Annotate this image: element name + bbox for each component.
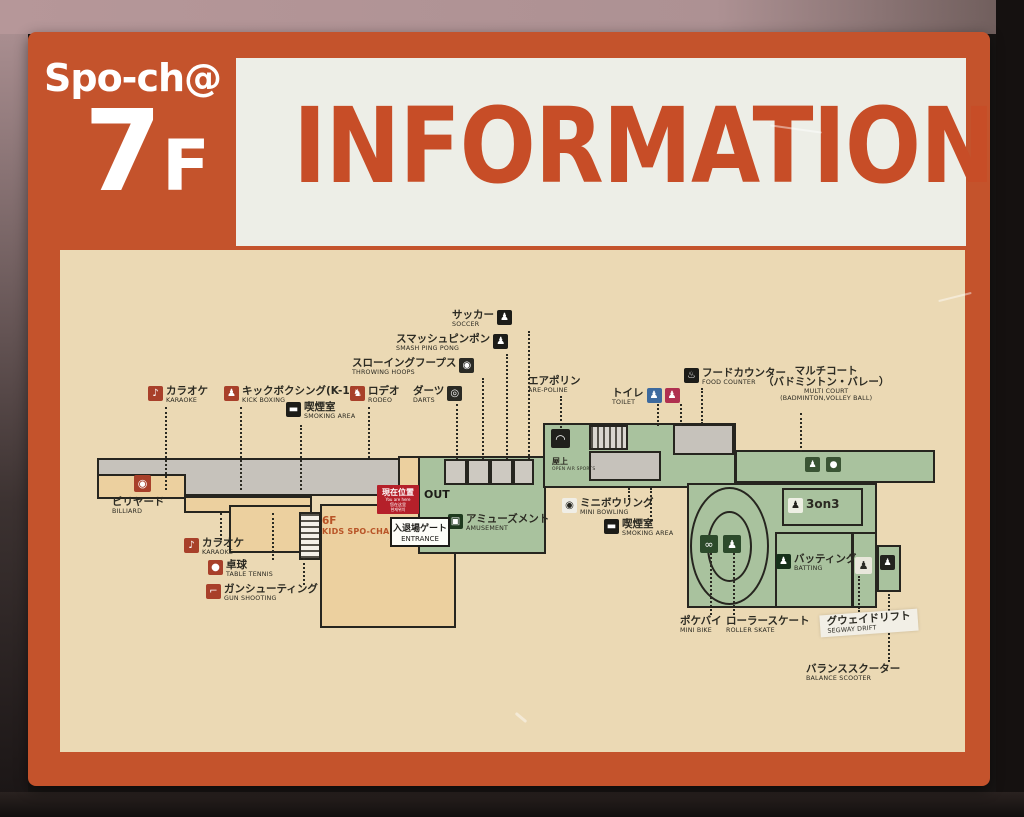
facility-label-text: 3on3 <box>806 498 840 510</box>
facility-label-balance-scooter: バランススクーターBALANCE SCOOTER <box>806 664 900 682</box>
label-japanese: ミニボウリング <box>580 498 654 509</box>
label-japanese: スマッシュピンポン <box>396 334 490 345</box>
facility-label-karaoke-upper: ♪カラオケKARAOKE <box>148 386 208 404</box>
label-japanese: アミューズメント <box>466 514 549 525</box>
badminton-icon: ♟ <box>805 457 820 472</box>
facility-label-text: 屋上OPEN AIR SPORTS <box>552 458 595 472</box>
label-english: (BADMINTON,VOLLEY BALL) <box>780 396 872 402</box>
label-english: GUN SHOOTING <box>224 596 318 602</box>
label-japanese: ローラースケート <box>726 616 809 627</box>
you-are-here-ko: 현재위치 <box>378 508 418 513</box>
label-english: MINI BOWLING <box>580 510 654 516</box>
label-english: MULTI COURT <box>804 389 848 395</box>
label-english: KARAOKE <box>202 550 244 556</box>
label-japanese: （バドミントン・バレー） <box>763 377 889 388</box>
three-on-three-icon: ♟ <box>788 498 803 513</box>
facility-label-smoking-left: ▬喫煙室SMOKING AREA <box>286 402 355 420</box>
label-japanese: キックボクシング(K-1) <box>242 386 355 397</box>
facility-label-text: トイレTOILET <box>612 388 644 406</box>
zone-booth-2 <box>467 459 490 485</box>
label-english: THROWING HOOPS <box>352 370 456 376</box>
soccer-icon: ♟ <box>497 310 512 325</box>
facility-label-text: アミューズメントAMUSEMENT <box>466 514 549 532</box>
leader-line <box>456 404 458 459</box>
facility-label-text: ガンシューティングGUN SHOOTING <box>224 584 318 602</box>
you-are-here-badge: 現在位置 You are here 您在这里 현재위치 <box>377 485 419 514</box>
label-japanese: 6F <box>322 516 389 527</box>
facility-label-text: ロデオRODEO <box>368 386 400 404</box>
facility-label-text: ミニボウリングMINI BOWLING <box>580 498 654 516</box>
rodeo-icon: ♞ <box>350 386 365 401</box>
karaoke-upper-icon: ♪ <box>148 386 163 401</box>
facility-label-roller-skate: ローラースケートROLLER SKATE <box>726 616 809 634</box>
facility-label-text: カラオケKARAOKE <box>202 538 244 556</box>
zone-stairs-right <box>589 425 628 450</box>
leader-line <box>506 354 508 459</box>
label-english: BATTING <box>794 566 856 572</box>
facility-label-text: 6FKIDS SPO-CHA <box>322 516 389 536</box>
toilet-icon-1: ♟ <box>647 388 662 403</box>
zone-booth-4 <box>513 459 534 485</box>
label-japanese: 卓球 <box>226 560 273 571</box>
label-english: RODEO <box>368 398 400 404</box>
facility-label-text: マルチコート（バドミントン・バレー）MULTI COURT(BADMINTON,… <box>763 366 889 403</box>
facility-label-smoking-right: ▬喫煙室SMOKING AREA <box>604 519 673 537</box>
balance-icon: ♟ <box>880 555 895 570</box>
leader-line <box>272 513 274 560</box>
label-english: DARTS <box>413 398 444 404</box>
label-japanese: カラオケ <box>166 386 208 397</box>
entrance-gate-label: 入退場ゲート ENTRANCE <box>390 517 450 547</box>
label-japanese: 3on3 <box>806 498 840 510</box>
out-exit-label: OUT <box>424 488 450 501</box>
label-japanese: バッティング <box>794 554 856 565</box>
mini-bowling-icon: ◉ <box>562 498 577 513</box>
label-japanese: 屋上 <box>552 458 595 466</box>
roller-skate-icon: ♟ <box>723 535 741 553</box>
label-japanese: トイレ <box>612 388 644 399</box>
facility-label-rooftop: 屋上OPEN AIR SPORTS <box>552 458 595 472</box>
mini-bike-icon: ∞ <box>700 535 718 553</box>
leader-line <box>680 404 682 426</box>
amusement-icon: ▣ <box>448 514 463 529</box>
smoking-left-icon: ▬ <box>286 402 301 417</box>
facility-label-throwing-hoops: スローイングフープスTHROWING HOOPS◉ <box>352 358 474 376</box>
label-english: OPEN AIR SPORTS <box>552 468 595 473</box>
smash-ping-pong-icon: ♟ <box>493 334 508 349</box>
facility-label-amusement: ▣アミューズメントAMUSEMENT <box>448 514 549 532</box>
label-japanese: マルチコート <box>795 366 858 377</box>
leader-line <box>165 407 167 490</box>
facility-label-text: 喫煙室SMOKING AREA <box>304 402 355 420</box>
leader-line <box>733 553 735 615</box>
label-english: KARAOKE <box>166 398 208 404</box>
facility-label-karaoke-lower: ♪カラオケKARAOKE <box>184 538 244 556</box>
facility-label-table-tennis: ●卓球TABLE TENNIS <box>208 560 273 578</box>
trampoline-icon: ◠ <box>551 429 570 448</box>
facility-label-text: ダーツDARTS <box>413 386 444 404</box>
facility-label-rodeo: ♞ロデオRODEO <box>350 386 400 404</box>
leader-line <box>300 425 302 490</box>
darts-icon: ◎ <box>447 386 462 401</box>
label-japanese: 喫煙室 <box>622 519 673 530</box>
facility-label-gun-shooting: ⌐ガンシューティングGUN SHOOTING <box>206 584 318 602</box>
leader-line <box>858 576 860 612</box>
throwing-hoops-icon: ◉ <box>459 358 474 373</box>
label-japanese: サッカー <box>452 310 494 321</box>
label-english: TOILET <box>612 400 644 406</box>
facility-label-soccer: サッカーSOCCER♟ <box>452 310 512 328</box>
leader-line <box>240 407 242 490</box>
facility-label-segway-drift: グウェイドリフトSEGWAY DRIFT <box>819 609 918 638</box>
label-english: SMASH PING PONG <box>396 346 490 352</box>
facility-label-toilet: トイレTOILET♟♟ <box>612 388 680 406</box>
smoking-right-icon: ▬ <box>604 519 619 534</box>
label-japanese: スローイングフープス <box>352 358 456 369</box>
facility-label-mini-bike: ポケバイMINI BIKE <box>680 616 722 634</box>
facility-label-text: ビリヤードBILLIARD <box>112 497 165 515</box>
zone-booth-3 <box>490 459 513 485</box>
leader-line <box>657 404 659 426</box>
facility-label-text: バッティングBATTING <box>794 554 856 572</box>
facility-label-text: ローラースケートROLLER SKATE <box>726 616 809 634</box>
label-english: BILLIARD <box>112 509 165 515</box>
label-english: KIDS SPO-CHA <box>322 528 389 536</box>
leader-line <box>303 558 305 585</box>
volleyball-icon: ● <box>826 457 841 472</box>
leader-line <box>482 378 484 459</box>
label-english: MINI BIKE <box>680 628 722 634</box>
label-japanese: ガンシューティング <box>224 584 318 595</box>
label-japanese: ポケバイ <box>680 616 722 627</box>
facility-label-are-poline: エアポリンARE-POLINE <box>528 376 581 394</box>
batting-icon: ♟ <box>776 554 791 569</box>
facility-label-text: ポケバイMINI BIKE <box>680 616 722 634</box>
label-english: SOCCER <box>452 322 494 328</box>
facility-label-batting: ♟バッティングBATTING <box>776 554 856 572</box>
facility-label-smash-ping-pong: スマッシュピンポンSMASH PING PONG♟ <box>396 334 508 352</box>
facility-label-text: サッカーSOCCER <box>452 310 494 328</box>
facility-label-text: スローイングフープスTHROWING HOOPS <box>352 358 456 376</box>
leader-line <box>701 388 703 424</box>
label-japanese: ロデオ <box>368 386 400 397</box>
label-japanese: バランススクーター <box>806 664 900 675</box>
billiard-icon: ◉ <box>134 475 151 492</box>
label-japanese: ダーツ <box>413 386 444 397</box>
facility-label-text: バランススクーターBALANCE SCOOTER <box>806 664 900 682</box>
label-english: AMUSEMENT <box>466 526 549 532</box>
leader-line <box>220 513 222 540</box>
label-english: TABLE TENNIS <box>226 572 273 578</box>
zone-food-counter <box>673 424 734 455</box>
label-english: SMOKING AREA <box>304 414 355 420</box>
facility-label-mini-bowling: ◉ミニボウリングMINI BOWLING <box>562 498 654 516</box>
leader-line <box>368 407 370 458</box>
gun-shooting-icon: ⌐ <box>206 584 221 599</box>
food-counter-icon: ♨ <box>684 368 699 383</box>
label-english: SMOKING AREA <box>622 531 673 537</box>
facility-label-multi-court: マルチコート（バドミントン・バレー）MULTI COURT(BADMINTON,… <box>763 366 889 403</box>
toilet-icon-2: ♟ <box>665 388 680 403</box>
facility-label-three-on-three: ♟3on3 <box>788 498 840 513</box>
leader-line <box>560 396 562 428</box>
entrance-jp: 入退場ゲート <box>392 521 448 534</box>
facility-label-text: スマッシュピンポンSMASH PING PONG <box>396 334 490 352</box>
facility-label-text: カラオケKARAOKE <box>166 386 208 404</box>
zone-gray-hall <box>589 451 661 481</box>
zone-booth-1 <box>444 459 467 485</box>
leader-line <box>528 331 530 459</box>
zone-stairs-left <box>299 512 321 560</box>
facility-label-text: エアポリンARE-POLINE <box>528 376 581 394</box>
label-japanese: カラオケ <box>202 538 244 549</box>
karaoke-lower-icon: ♪ <box>184 538 199 553</box>
label-japanese: エアポリン <box>528 376 581 387</box>
facility-label-text: 卓球TABLE TENNIS <box>226 560 273 578</box>
photo-of-floor-guide-sign: Spo-ch@ 7F INFORMATION ◉◠♟●∞♟♟♟♪カラオケKARA… <box>0 0 1024 817</box>
label-english: BALANCE SCOOTER <box>806 676 900 682</box>
segway-icon: ♟ <box>855 557 872 574</box>
facility-label-kids-spocha: 6FKIDS SPO-CHA <box>322 516 389 536</box>
facility-label-billiard: ビリヤードBILLIARD <box>112 497 165 515</box>
facility-label-text: 喫煙室SMOKING AREA <box>622 519 673 537</box>
label-english: ROLLER SKATE <box>726 628 809 634</box>
leader-line <box>800 413 802 452</box>
leader-line <box>710 553 712 615</box>
facility-label-text: グウェイドリフトSEGWAY DRIFT <box>826 611 911 635</box>
floor-map: ◉◠♟●∞♟♟♟♪カラオケKARAOKE♟キックボクシング(K-1)KICK B… <box>0 0 1024 817</box>
label-japanese: 喫煙室 <box>304 402 355 413</box>
label-english: ARE-POLINE <box>528 388 581 394</box>
table-tennis-icon: ● <box>208 560 223 575</box>
kick-boxing-icon: ♟ <box>224 386 239 401</box>
entrance-en: ENTRANCE <box>392 535 448 543</box>
facility-label-darts: ダーツDARTS◎ <box>413 386 462 404</box>
label-japanese: ビリヤード <box>112 497 165 508</box>
